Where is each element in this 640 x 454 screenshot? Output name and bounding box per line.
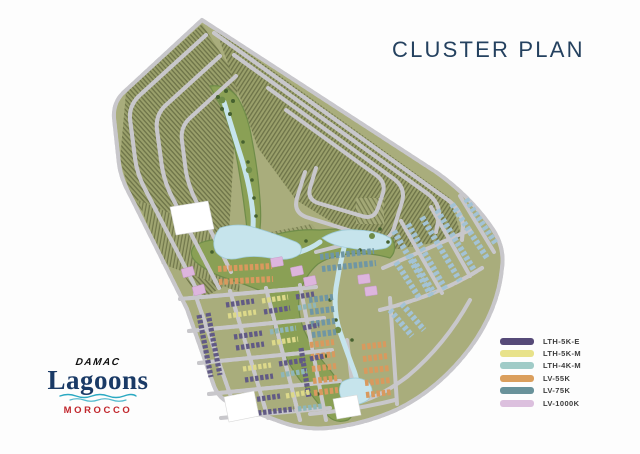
legend-label: LV-55K [543, 374, 570, 383]
legend-label: LTH-5K-E [543, 337, 580, 346]
legend-item: LV-75K [500, 385, 581, 397]
lagoons-wordmark: Lagoons [42, 368, 154, 392]
legend-item: LV-55K [500, 372, 581, 384]
legend-item: LTH-5K-M [500, 347, 581, 359]
legend-item: LV-1000K [500, 397, 581, 409]
legend-item: LTH-4K-M [500, 360, 581, 372]
waves-icon [56, 393, 140, 403]
cluster-plan-page: CLUSTER PLAN LTH-5K-ELTH-5K-MLTH-4K-MLV-… [0, 0, 640, 454]
damac-wordmark: DAMAC [41, 357, 155, 368]
legend-swatch [500, 400, 534, 407]
page-title: CLUSTER PLAN [392, 37, 602, 63]
legend-label: LV-75K [543, 386, 570, 395]
legend-label: LTH-4K-M [543, 361, 581, 370]
legend-item: LTH-5K-E [500, 335, 581, 347]
damac-lagoons-logo: DAMAC Lagoons MOROCCO [42, 357, 154, 416]
morocco-label: MOROCCO [42, 405, 154, 416]
legend-swatch [500, 387, 534, 394]
legend-swatch [500, 338, 534, 345]
legend-label: LV-1000K [543, 399, 579, 408]
legend-swatch [500, 362, 534, 369]
legend-label: LTH-5K-M [543, 349, 581, 358]
legend-swatch [500, 350, 534, 357]
legend: LTH-5K-ELTH-5K-MLTH-4K-MLV-55KLV-75KLV-1… [500, 335, 581, 409]
legend-swatch [500, 375, 534, 382]
